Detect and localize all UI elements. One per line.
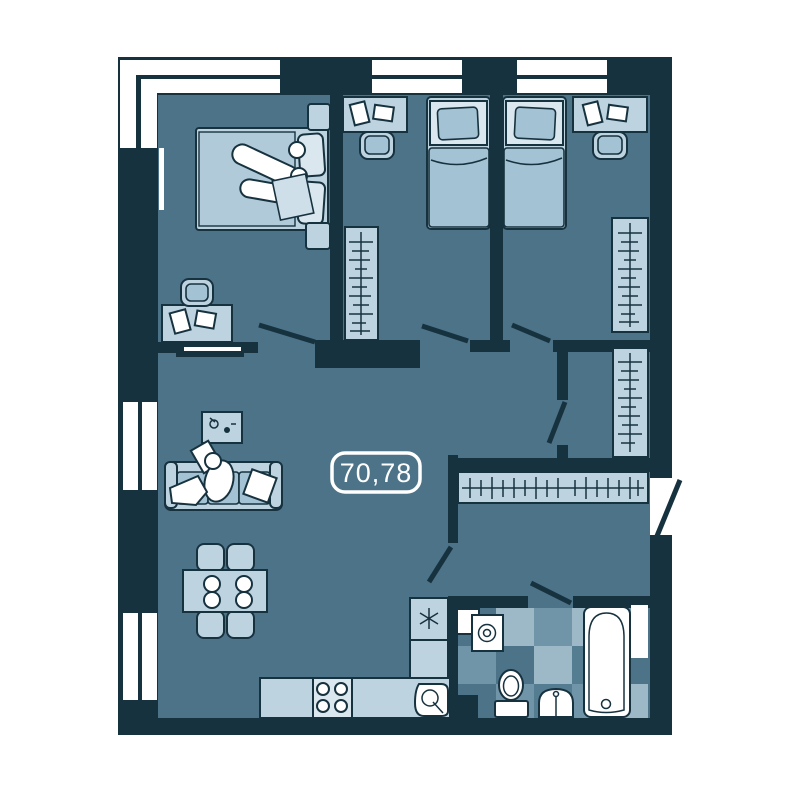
dining-chair [197,611,224,638]
desk [162,305,232,342]
floor-plan: 70,78 [0,0,800,800]
double-bed [196,128,328,230]
nightstand [306,223,330,249]
wardrobe-rack [612,218,648,332]
mirror [159,148,164,210]
fridge [410,598,448,640]
kitchen-sink [415,684,448,716]
desk [573,97,647,132]
stove [313,678,352,718]
coffee-table [202,412,242,443]
bathtub [584,607,630,717]
dining-chair [227,611,254,638]
desk-chair [181,279,213,306]
closet-room [613,348,648,457]
kitchen-cabinet [410,640,448,678]
coat-rack [458,472,648,503]
area-label-text: 70,78 [340,458,413,488]
dining-chair [227,544,254,571]
dining-chair [197,544,224,571]
tv [176,347,244,357]
desk-chair [593,132,627,159]
single-bed [503,97,566,229]
nightstand [308,104,330,130]
bath-cabinet [631,605,648,658]
desk-chair [360,132,394,159]
bathroom-sink [539,689,573,717]
single-bed [427,97,490,229]
dining-table [183,570,267,612]
floor-plan-page: 70,78 [0,0,800,800]
wardrobe-rack [345,227,378,340]
wardrobe-rack [613,348,648,457]
area-label: 70,78 [332,453,420,492]
desk [343,97,407,132]
